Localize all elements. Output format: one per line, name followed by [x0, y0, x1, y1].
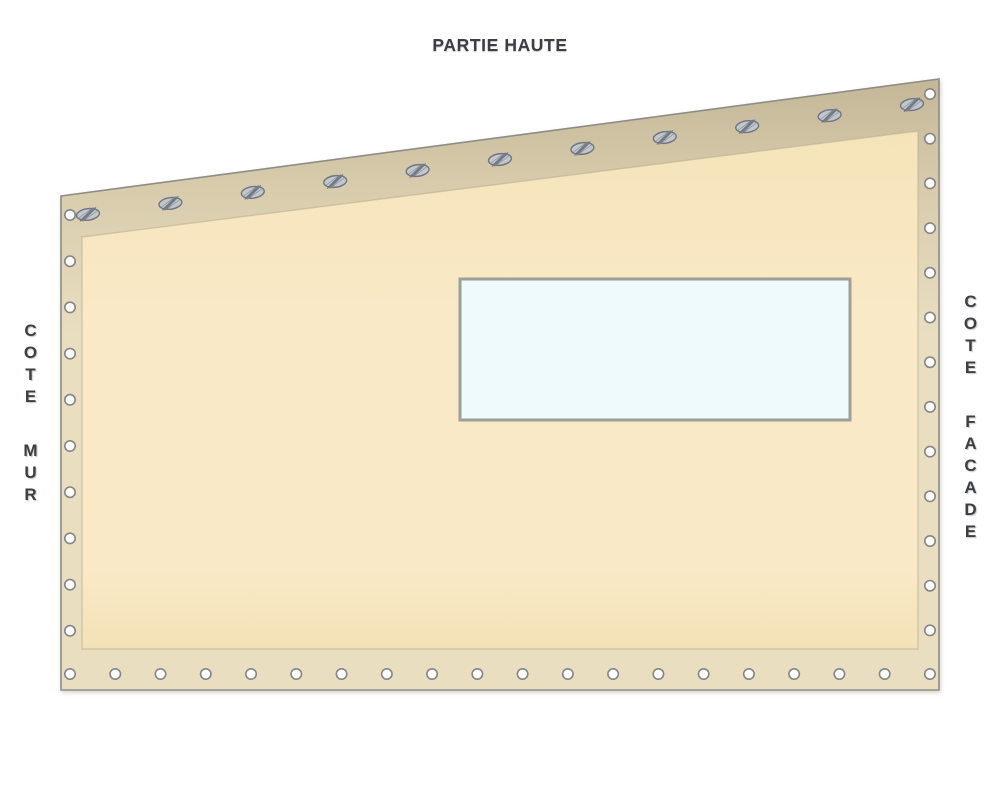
eyelet-icon — [925, 357, 935, 367]
eyelet-icon — [65, 210, 75, 220]
eyelet-icon — [698, 669, 708, 679]
eyelet-icon — [608, 669, 618, 679]
eyelet-icon — [65, 441, 75, 451]
eyelet-icon — [925, 581, 935, 591]
eyelet-icon — [382, 669, 392, 679]
eyelet-icon — [472, 669, 482, 679]
eyelet-icon — [653, 669, 663, 679]
eyelet-icon — [925, 134, 935, 144]
eyelet-icon — [517, 669, 527, 679]
eyelet-icon — [563, 669, 573, 679]
eyelet-icon — [879, 669, 889, 679]
eyelet-icon — [201, 669, 211, 679]
eyelet-icon — [925, 669, 935, 679]
tarp-drawing — [0, 0, 1000, 800]
eyelet-icon — [925, 625, 935, 635]
eyelet-icon — [925, 536, 935, 546]
eyelet-icon — [925, 312, 935, 322]
eyelet-icon — [925, 178, 935, 188]
eyelet-icon — [925, 446, 935, 456]
eyelet-icon — [65, 256, 75, 266]
eyelet-icon — [65, 533, 75, 543]
eyelet-icon — [925, 491, 935, 501]
eyelet-icon — [65, 395, 75, 405]
eyelet-icon — [925, 268, 935, 278]
eyelet-icon — [65, 348, 75, 358]
eyelet-icon — [65, 669, 75, 679]
eyelet-icon — [291, 669, 301, 679]
eyelet-icon — [336, 669, 346, 679]
eyelet-icon — [65, 579, 75, 589]
eyelet-icon — [65, 487, 75, 497]
eyelet-icon — [155, 669, 165, 679]
eyelet-icon — [65, 626, 75, 636]
eyelet-icon — [834, 669, 844, 679]
eyelet-icon — [427, 669, 437, 679]
window-panel — [460, 279, 850, 420]
eyelet-icon — [925, 402, 935, 412]
eyelet-icon — [246, 669, 256, 679]
eyelet-icon — [65, 302, 75, 312]
tarp-diagram: PARTIE HAUTE COTE MUR COTE FACADE — [0, 0, 1000, 800]
eyelet-icon — [744, 669, 754, 679]
eyelet-icon — [110, 669, 120, 679]
eyelet-icon — [925, 89, 935, 99]
eyelet-icon — [925, 223, 935, 233]
eyelet-icon — [789, 669, 799, 679]
